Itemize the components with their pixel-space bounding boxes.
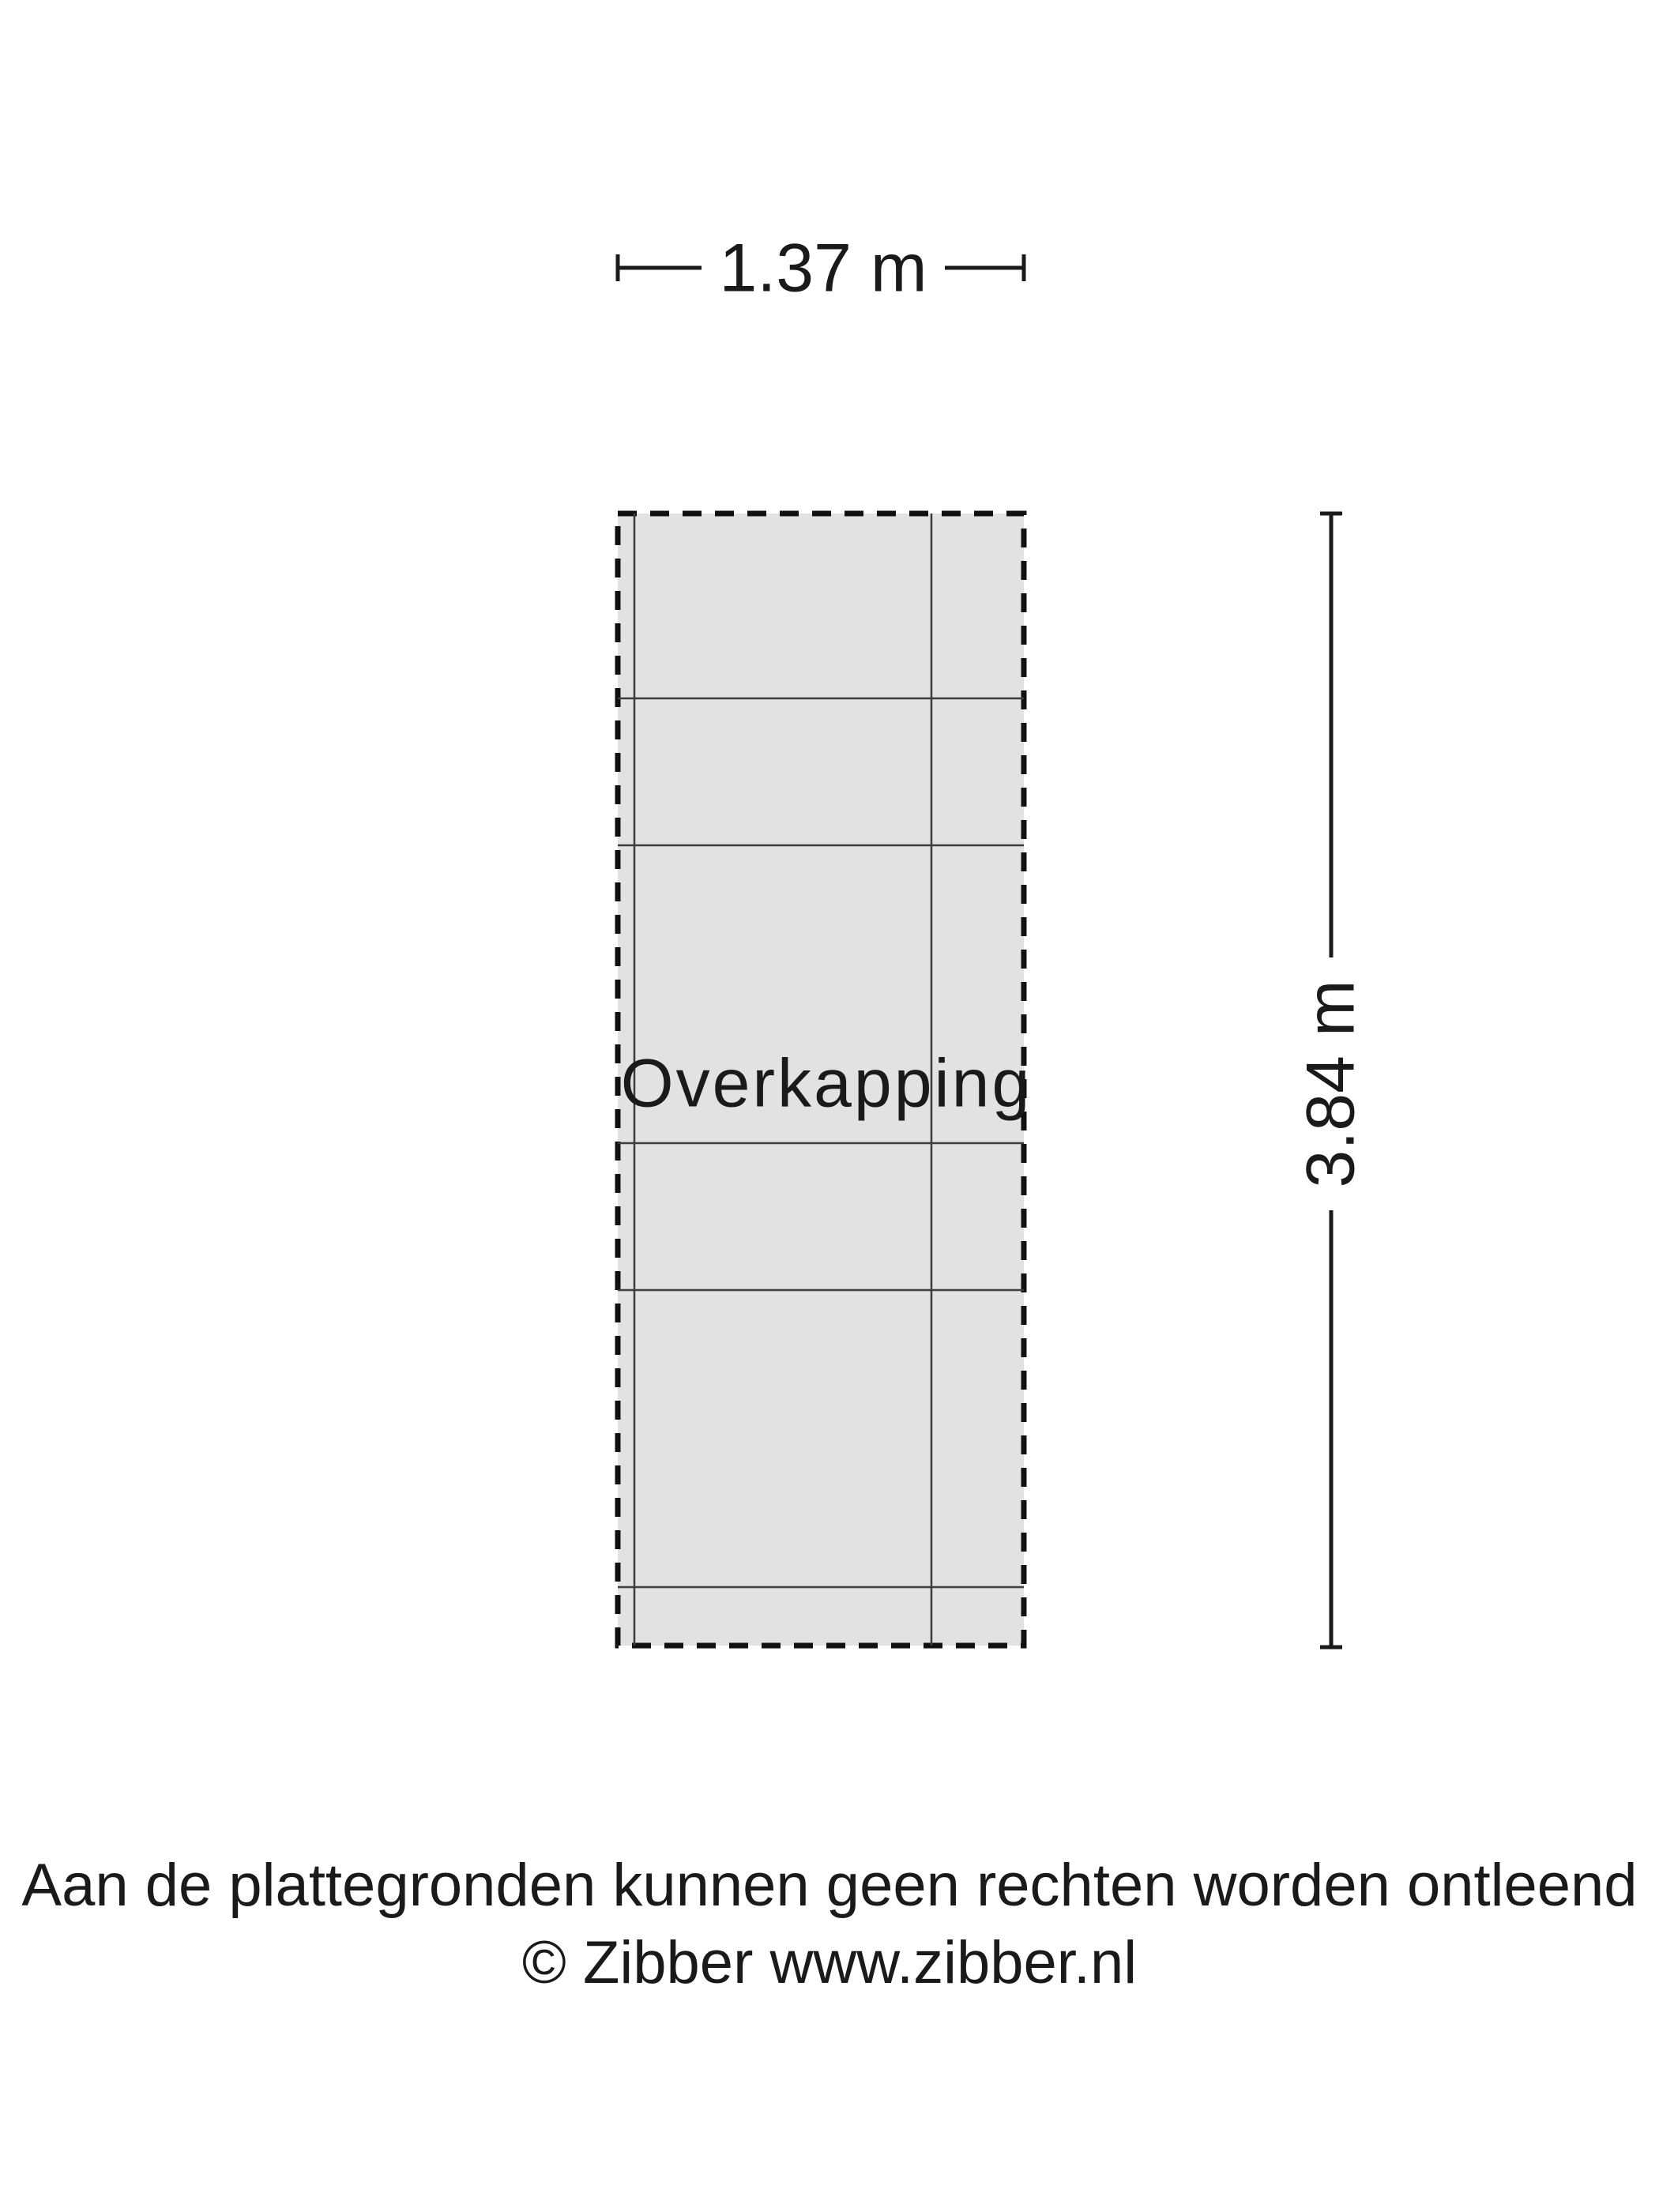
width-dimension-label: 1.37 m	[720, 230, 927, 308]
disclaimer-text: Aan de plattegronden kunnen geen rechten…	[0, 1847, 1659, 1924]
room-label: Overkapping	[621, 1045, 1033, 1123]
footer: Aan de plattegronden kunnen geen rechten…	[0, 1847, 1659, 2002]
height-dimension-label: 3.84 m	[1292, 980, 1371, 1188]
floorplan-page: 1.37 m Overkapping 3.84 m Aan de platteg…	[0, 0, 1659, 2212]
copyright-text: © Zibber www.zibber.nl	[0, 1924, 1659, 2002]
